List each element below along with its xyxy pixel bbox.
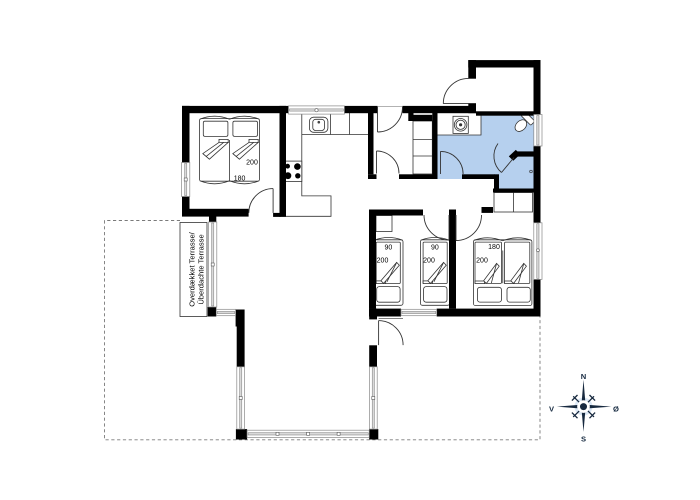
svg-text:200: 200	[377, 258, 389, 265]
svg-text:200: 200	[423, 258, 435, 265]
svg-text:90: 90	[385, 245, 393, 252]
svg-text:Overdækket Terrasse/: Overdækket Terrasse/	[187, 231, 196, 306]
svg-text:90: 90	[431, 245, 439, 252]
svg-text:180: 180	[488, 244, 500, 251]
svg-text:200: 200	[476, 257, 488, 264]
svg-text:200: 200	[246, 159, 258, 166]
svg-text:Ø: Ø	[613, 405, 619, 414]
svg-text:Überdachte Terrasse: Überdachte Terrasse	[196, 234, 205, 304]
svg-text:N: N	[581, 372, 586, 381]
svg-text:180: 180	[234, 176, 246, 183]
svg-text:S: S	[581, 435, 586, 444]
